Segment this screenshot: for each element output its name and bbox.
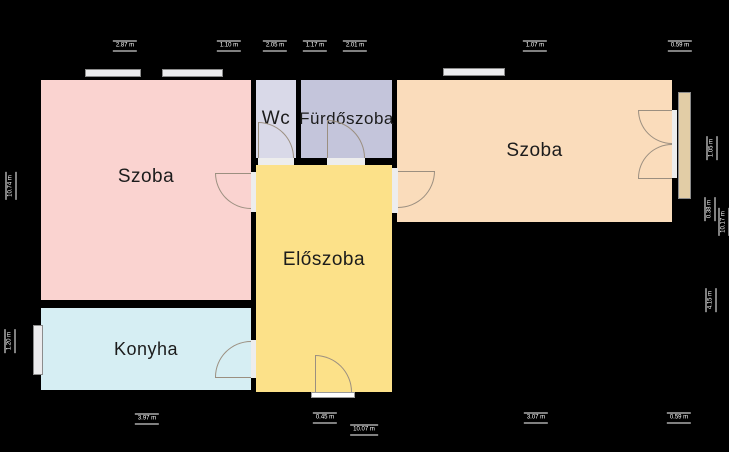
dimension-label: 10.74 m (6, 172, 17, 200)
window-szoba-left-1 (85, 69, 141, 77)
dimension-label: 2.05 m (263, 41, 287, 52)
door-leaf-balcony-upper (638, 110, 672, 111)
dimension-label: 0.59 m (668, 41, 692, 52)
entrance-threshold (311, 392, 355, 398)
dimension-label: 10.07 m (350, 425, 378, 436)
door-leaf-szoba-left (215, 173, 251, 174)
dimension-label: 1.05 m (707, 136, 718, 160)
dimension-label: 3.07 m (524, 413, 548, 424)
dimension-label: 0.45 m (313, 413, 337, 424)
door-opening-balcony (672, 110, 677, 178)
door-opening-wc (258, 158, 294, 165)
door-leaf-wc (258, 122, 259, 158)
dimension-label: 1.20 m (5, 329, 16, 353)
room-szoba-right: Szoba (397, 80, 672, 222)
room-label-konyha: Konyha (114, 339, 178, 360)
dimension-label: 2.87 m (113, 41, 137, 52)
dimension-label: 1.07 m (523, 41, 547, 52)
door-leaf-entrance (315, 355, 316, 392)
floor-plan: Szoba Wc Fürdőszoba Szoba Előszoba Konyh… (0, 0, 729, 452)
door-opening-konyha (251, 340, 256, 378)
window-konyha (33, 325, 43, 375)
room-label-szoba-right: Szoba (506, 140, 562, 162)
door-leaf-szoba-right (398, 171, 435, 172)
dimension-label: 1.10 m (217, 41, 241, 52)
room-label-szoba-left: Szoba (118, 166, 174, 188)
window-szoba-right (443, 68, 505, 76)
door-leaf-furdoszoba (327, 120, 328, 158)
dimension-label: 3.97 m (135, 414, 159, 425)
balcony-door-panel (678, 92, 691, 199)
door-leaf-balcony-lower (638, 178, 672, 179)
dimension-label: 0.38 m (705, 197, 716, 221)
room-label-eloszoba: Előszoba (283, 249, 365, 271)
door-opening-szoba-left (251, 172, 256, 212)
dimension-label: 0.59 m (667, 413, 691, 424)
dimension-label: 4.15 m (706, 288, 717, 312)
dimension-label: 1.17 m (303, 41, 327, 52)
door-leaf-konyha (215, 377, 251, 378)
door-opening-furdoszoba (327, 158, 365, 165)
window-szoba-left-2 (162, 69, 223, 77)
dimension-label: 10.17 m (719, 208, 729, 236)
dimension-label: 2.01 m (343, 41, 367, 52)
